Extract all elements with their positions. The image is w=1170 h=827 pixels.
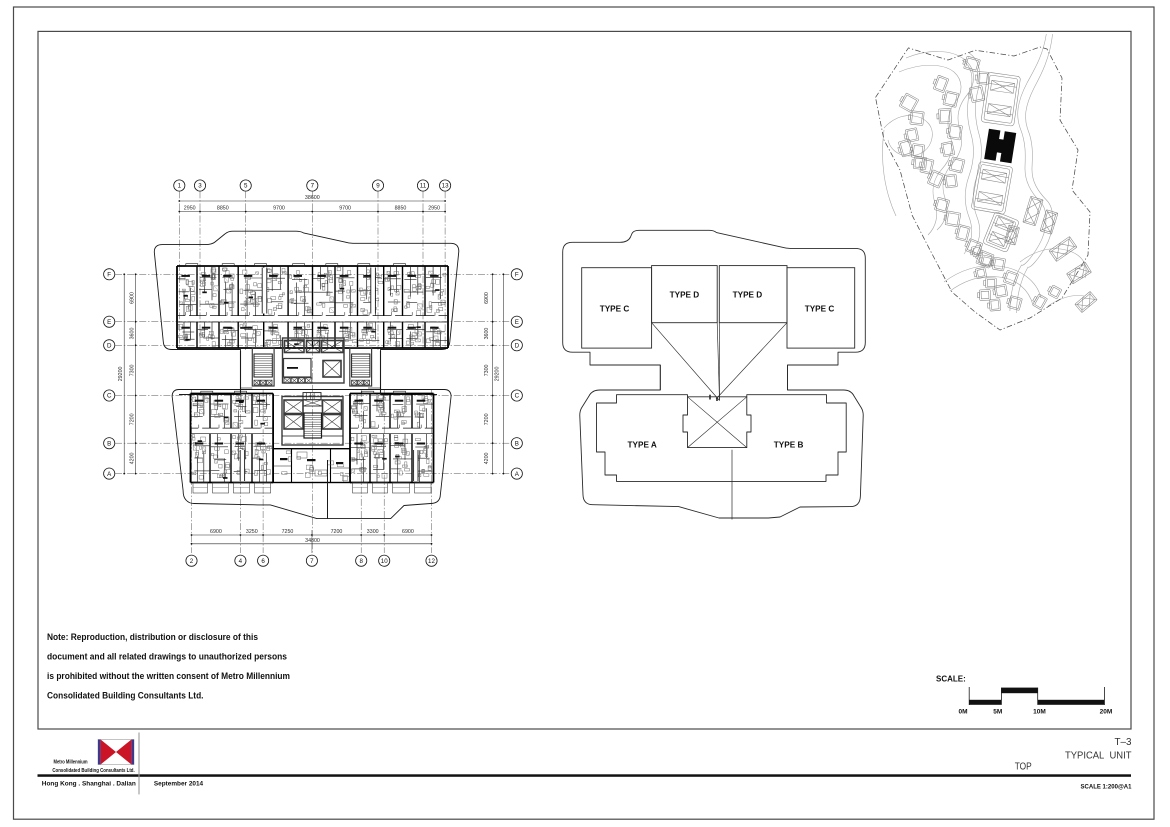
svg-text:TYPE A: TYPE A — [628, 441, 657, 450]
svg-text:D: D — [515, 343, 520, 350]
svg-text:1: 1 — [178, 183, 182, 190]
svg-text:12: 12 — [428, 558, 435, 565]
svg-text:E: E — [515, 319, 519, 326]
svg-text:3250: 3250 — [246, 529, 258, 535]
svg-text:D: D — [107, 343, 112, 350]
svg-text:8850: 8850 — [217, 205, 229, 211]
svg-text:F: F — [107, 272, 111, 279]
svg-text:3300: 3300 — [367, 529, 379, 535]
svg-text:7200: 7200 — [129, 413, 135, 425]
svg-text:4200: 4200 — [484, 452, 490, 464]
svg-text:TYPE D: TYPE D — [670, 291, 700, 300]
svg-text:2950: 2950 — [184, 205, 196, 211]
svg-text:34800: 34800 — [305, 538, 320, 544]
svg-text:TYPE D: TYPE D — [733, 291, 763, 300]
svg-text:E: E — [107, 319, 111, 326]
svg-text:7: 7 — [311, 183, 315, 190]
svg-text:Consolidated Building Consulta: Consolidated Building Consultants Ltd. — [52, 768, 135, 774]
svg-text:Hong Kong . Shanghai . Dalian: Hong Kong . Shanghai . Dalian — [42, 780, 136, 787]
svg-text:C: C — [515, 393, 520, 400]
svg-text:7200: 7200 — [331, 529, 343, 535]
svg-text:6900: 6900 — [484, 292, 490, 304]
svg-text:TYPE C: TYPE C — [600, 305, 630, 314]
svg-text:TOP: TOP — [1015, 760, 1032, 772]
svg-text:document and all related drawi: document and all related drawings to una… — [47, 652, 287, 662]
svg-text:29200: 29200 — [495, 366, 501, 381]
svg-text:SCALE 1:200@A1: SCALE 1:200@A1 — [1081, 783, 1132, 790]
svg-text:20M: 20M — [1100, 709, 1113, 716]
svg-text:7200: 7200 — [484, 413, 490, 425]
svg-text:Note: Reproduction, distributi: Note: Reproduction, distribution or disc… — [47, 632, 258, 642]
svg-text:B: B — [515, 440, 519, 447]
svg-text:13: 13 — [442, 183, 449, 190]
svg-text:TYPICAL UNIT: TYPICAL UNIT — [1065, 750, 1132, 761]
svg-text:F: F — [515, 272, 519, 279]
svg-text:C: C — [107, 393, 112, 400]
svg-text:5M: 5M — [993, 709, 1002, 716]
svg-text:September 2014: September 2014 — [154, 780, 204, 787]
svg-text:is prohibited without the writ: is prohibited without the written consen… — [47, 671, 290, 681]
svg-text:5: 5 — [244, 183, 248, 190]
svg-text:6900: 6900 — [402, 529, 414, 535]
svg-text:6900: 6900 — [129, 292, 135, 304]
svg-text:10M: 10M — [1033, 709, 1046, 716]
svg-text:B: B — [107, 440, 111, 447]
svg-text:3600: 3600 — [129, 328, 135, 340]
svg-text:11: 11 — [420, 183, 427, 190]
svg-text:2950: 2950 — [428, 205, 440, 211]
svg-text:29200: 29200 — [118, 366, 124, 381]
svg-text:4200: 4200 — [129, 452, 135, 464]
svg-text:9700: 9700 — [339, 205, 351, 211]
svg-text:6900: 6900 — [210, 529, 222, 535]
svg-text:TYPE C: TYPE C — [805, 305, 835, 314]
svg-text:7250: 7250 — [282, 529, 294, 535]
svg-text:3: 3 — [198, 183, 202, 190]
svg-text:9: 9 — [376, 183, 380, 190]
svg-text:8: 8 — [359, 558, 363, 565]
svg-text:7: 7 — [310, 558, 314, 565]
svg-text:2: 2 — [190, 558, 194, 565]
svg-text:10: 10 — [381, 558, 388, 565]
svg-text:4: 4 — [239, 558, 243, 565]
svg-text:Consolidated Building Consulta: Consolidated Building Consultants Ltd. — [47, 690, 204, 700]
svg-text:0M: 0M — [958, 709, 967, 716]
svg-text:3600: 3600 — [484, 328, 490, 340]
svg-text:7300: 7300 — [484, 364, 490, 376]
svg-text:7300: 7300 — [129, 364, 135, 376]
svg-text:TYPE B: TYPE B — [774, 441, 804, 450]
svg-text:6: 6 — [261, 558, 265, 565]
svg-text:9700: 9700 — [273, 205, 285, 211]
svg-text:T–3: T–3 — [1115, 737, 1132, 748]
svg-text:Metro Millennium: Metro Millennium — [54, 760, 88, 766]
svg-text:SCALE:: SCALE: — [936, 675, 966, 684]
svg-text:8850: 8850 — [395, 205, 407, 211]
svg-text:38600: 38600 — [305, 195, 320, 201]
